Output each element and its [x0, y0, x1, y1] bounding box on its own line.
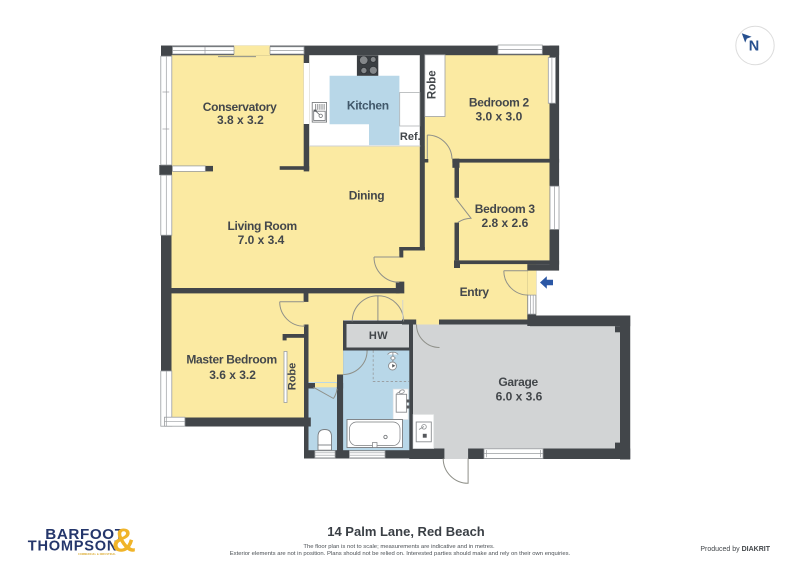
svg-text:Kitchen: Kitchen	[347, 99, 389, 113]
svg-text:Robe: Robe	[287, 363, 299, 391]
svg-text:3.6 x 3.2: 3.6 x 3.2	[209, 368, 256, 382]
svg-text:Produced by DIAKRIT: Produced by DIAKRIT	[700, 546, 770, 553]
svg-text:The floor plan is not to scale: The floor plan is not to scale; measurem…	[303, 544, 495, 550]
svg-text:Conservatory: Conservatory	[203, 100, 277, 114]
svg-text:Dining: Dining	[349, 189, 385, 203]
svg-text:Ref.: Ref.	[400, 131, 421, 143]
svg-text:THOMPSON: THOMPSON	[28, 539, 118, 555]
svg-text:Exterior elements are not in p: Exterior elements are not in position. P…	[230, 551, 571, 557]
svg-text:2.8 x 2.6: 2.8 x 2.6	[482, 216, 529, 230]
svg-text:Living Room: Living Room	[228, 219, 297, 233]
svg-text:Garage: Garage	[498, 375, 538, 389]
svg-text:6.0 x 3.6: 6.0 x 3.6	[496, 389, 543, 403]
svg-text:&: &	[112, 522, 136, 559]
svg-text:HW: HW	[369, 330, 388, 342]
svg-text:3.8 x 3.2: 3.8 x 3.2	[217, 113, 264, 127]
svg-text:Robe: Robe	[427, 70, 439, 99]
svg-text:14 Palm Lane, Red Beach: 14 Palm Lane, Red Beach	[327, 524, 485, 539]
svg-text:7.0 x 3.4: 7.0 x 3.4	[238, 233, 285, 247]
svg-text:Master Bedroom: Master Bedroom	[186, 352, 277, 366]
svg-text:N: N	[749, 39, 759, 55]
svg-text:3.0 x 3.0: 3.0 x 3.0	[476, 109, 523, 123]
svg-text:Entry: Entry	[460, 285, 490, 299]
svg-text:Bedroom 3: Bedroom 3	[475, 202, 536, 216]
svg-text:Bedroom 2: Bedroom 2	[469, 95, 530, 109]
